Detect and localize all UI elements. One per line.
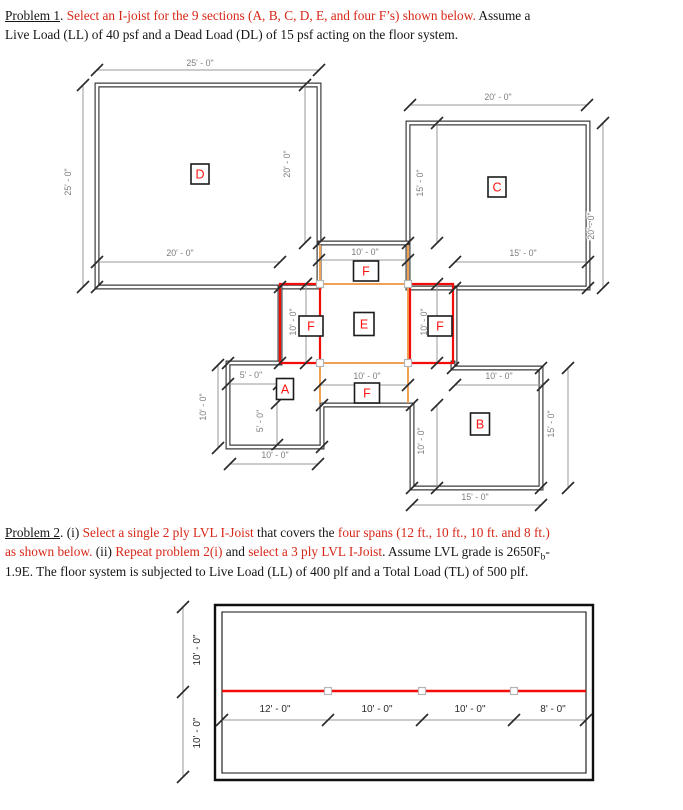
dimension-label: 20' - 0": [484, 92, 511, 102]
inner-wall: [222, 612, 586, 773]
support-post-square: [511, 688, 518, 695]
text-line: 1.9E. The floor system is subjected to L…: [5, 562, 550, 581]
problem2-text: Problem 2. (i) Select a single 2 ply LVL…: [5, 523, 550, 581]
body-text: (ii): [92, 544, 115, 559]
outer-wall: [215, 605, 593, 780]
section-label-F: F: [362, 264, 370, 278]
highlighted-text: as shown below.: [5, 544, 92, 559]
support-post-square: [405, 281, 412, 288]
problem-heading: Problem 2: [5, 525, 60, 540]
wall: [228, 363, 541, 488]
section-label-B: B: [476, 417, 484, 431]
dimension-label: 10' - 0": [351, 247, 378, 257]
dimension-label: 10' - 0": [454, 704, 485, 715]
support-post-square: [405, 360, 412, 367]
highlighted-text: Select a single 2 ply LVL I-Joist: [83, 525, 254, 540]
section-label-F: F: [436, 319, 444, 333]
dimension-label: 10' - 0": [288, 308, 298, 335]
highlighted-text: select a 3 ply LVL I-Joist: [248, 544, 382, 559]
highlighted-text: Repeat problem 2(i): [115, 544, 222, 559]
dimension-label: 10' - 0": [192, 717, 203, 748]
floor-plan-canvas: 25' - 0"25' - 0"20' - 0"20' - 0"10' - 0"…: [0, 0, 683, 810]
body-text: and: [222, 544, 248, 559]
dimension-label: 10' - 0": [361, 704, 392, 715]
dimension-label: 10' - 0": [485, 371, 512, 381]
section-label-E: E: [360, 317, 368, 331]
wall-inner-gap: [408, 123, 588, 288]
section-label-D: D: [195, 167, 204, 181]
dimension-label: 15' - 0": [415, 169, 425, 196]
dimension-label: 15' - 0": [546, 410, 556, 437]
text-line: as shown below. (ii) Repeat problem 2(i)…: [5, 542, 550, 561]
dimension-label: 20' - 0": [282, 150, 292, 177]
dimension-label: 10' - 0": [416, 427, 426, 454]
body-text: -: [545, 544, 549, 559]
support-post-square: [325, 688, 332, 695]
section-label-A: A: [281, 382, 290, 396]
dimension-label: 20' - 0": [166, 248, 193, 258]
highlighted-text: four spans (12 ft., 10 ft., 10 ft. and 8…: [338, 525, 550, 540]
dimension-label: 15' - 0": [509, 248, 536, 258]
dimension-label: 10' - 0": [353, 371, 380, 381]
dimension-label: 5' - 0": [255, 410, 265, 432]
dimension-label: 8' - 0": [540, 704, 566, 715]
support-post-square: [317, 281, 324, 288]
support-post-square: [317, 360, 324, 367]
dimension-label: 25' - 0": [186, 58, 213, 68]
body-text: . Assume LVL grade is 2650F: [382, 544, 541, 559]
section-label-F: F: [307, 319, 315, 333]
section-label-F: F: [363, 386, 371, 400]
support-post-square: [419, 688, 426, 695]
dimension-label: 10' - 0": [198, 393, 208, 420]
dimension-label: 10' - 0": [261, 450, 288, 460]
dimension-label: 5' - 0": [240, 370, 262, 380]
dimension-label: 20' - 0": [586, 212, 596, 239]
dimension-label: 15' - 0": [461, 492, 488, 502]
dimension-label: 10' - 0": [192, 634, 203, 665]
dimension-label: 12' - 0": [259, 704, 290, 715]
text-line: Problem 2. (i) Select a single 2 ply LVL…: [5, 523, 550, 542]
section-label-C: C: [492, 180, 501, 194]
dimension-label: 25' - 0": [63, 168, 73, 195]
problem2-beam-plan: 12' - 0"10' - 0"10' - 0"8' - 0"10' - 0"1…: [177, 601, 593, 783]
problem1-floor-plan: 25' - 0"25' - 0"20' - 0"20' - 0"10' - 0"…: [63, 58, 609, 511]
body-text: . (i): [60, 525, 83, 540]
worksheet-page: { "problem1": { "lines": [ [ {"t":"Probl…: [0, 0, 683, 810]
wall-inner-gap: [228, 363, 541, 488]
body-text: 1.9E. The floor system is subjected to L…: [5, 564, 528, 579]
wall: [408, 123, 588, 288]
body-text: that covers the: [254, 525, 338, 540]
